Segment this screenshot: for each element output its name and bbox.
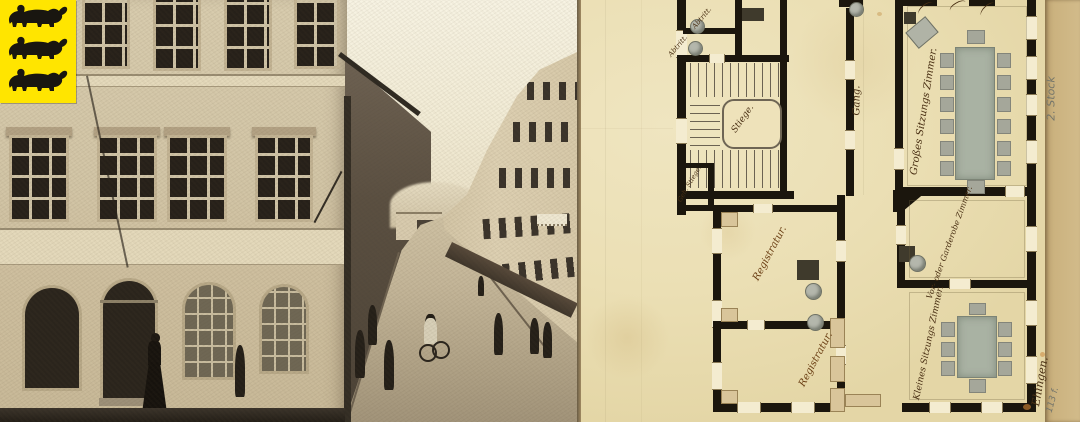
door-gap [894, 148, 904, 170]
wall-window [981, 402, 1003, 413]
room-label-registratur-upper: Registratur. [744, 211, 796, 296]
room-outline [909, 200, 1025, 278]
door-gap [896, 225, 906, 245]
foxing-spot [877, 12, 882, 16]
window-row [513, 122, 577, 142]
door-gap [845, 130, 855, 150]
old-wall-block [830, 388, 845, 412]
door-gap [747, 320, 765, 330]
street-gutter-shadow [0, 408, 345, 422]
wall-window [676, 118, 687, 144]
cyclist-body [424, 318, 437, 344]
chair [997, 97, 1011, 112]
wall-window [1026, 56, 1037, 80]
wall-window [791, 402, 815, 413]
pedestrian [368, 305, 377, 345]
pedestrian-torso [148, 341, 161, 365]
chair [997, 75, 1011, 90]
stove-flue [904, 12, 916, 24]
stove [797, 260, 819, 280]
archival-composite: Abtritt. Abtritt. Stiege. Geh. Stiege. G… [0, 0, 1080, 422]
stair-treads [690, 150, 779, 188]
stair-treads [690, 63, 779, 97]
wall-window [1026, 140, 1037, 164]
pedestrian [384, 340, 394, 390]
pencil-line [641, 0, 642, 422]
window [258, 138, 310, 219]
door-gap [753, 204, 773, 213]
wall-segment [780, 0, 787, 198]
old-wall-block [721, 308, 738, 322]
window [170, 138, 224, 219]
floor-plan-sheet: Abtritt. Abtritt. Stiege. Geh. Stiege. G… [577, 0, 1080, 422]
chair [997, 53, 1011, 68]
string-course [0, 228, 347, 265]
old-wall-block [721, 212, 738, 227]
window-lintel [164, 127, 230, 136]
wall-window [1026, 300, 1037, 326]
bicycle-wheel [432, 341, 450, 359]
pedestrian [543, 322, 552, 358]
pencil-line [577, 128, 673, 129]
door-gap [1005, 186, 1025, 197]
conference-table [955, 47, 995, 180]
old-wall-block [721, 390, 738, 404]
arched-window [25, 288, 79, 388]
chair [969, 379, 986, 393]
chair [967, 30, 985, 44]
privy-fixture [742, 8, 764, 21]
pencil-line [863, 0, 864, 195]
wall-window [1026, 16, 1037, 40]
shop-awning [537, 214, 567, 226]
wall-segment [677, 191, 794, 199]
wall-window [1026, 226, 1037, 252]
wall-segment [735, 0, 742, 58]
chair [998, 361, 1012, 376]
photo-plan-seam [577, 0, 581, 422]
chair [998, 342, 1012, 357]
window-lintel [6, 127, 72, 136]
wall-segment [902, 403, 1036, 412]
door-transom-bar [100, 300, 158, 303]
door-gap [949, 279, 971, 289]
chair [940, 75, 954, 90]
corridor-label: Gang. [851, 86, 862, 116]
wall-segment [708, 163, 714, 209]
chair [941, 342, 955, 357]
chair [940, 141, 954, 156]
window-lintel [94, 127, 160, 136]
arched-window [185, 285, 233, 377]
door-gap [709, 54, 725, 63]
chair [940, 53, 954, 68]
chair [941, 361, 955, 376]
chair [940, 119, 954, 134]
side-window-row [343, 107, 433, 158]
wall-window [712, 228, 722, 254]
baden-wuerttemberg-coat-of-arms [0, 0, 76, 103]
window [85, 0, 127, 66]
old-wall-block [845, 394, 881, 407]
wall-window [1026, 94, 1037, 116]
wall-segment [713, 403, 845, 412]
wall-segment [713, 205, 845, 212]
pedestrian [494, 313, 503, 355]
floor-note: 2. Stock [1045, 76, 1058, 120]
three-lions-icon [0, 0, 76, 103]
pedestrian [235, 345, 245, 397]
chair [998, 322, 1012, 337]
window [12, 138, 66, 219]
old-wall-block [830, 356, 845, 382]
chair [940, 161, 954, 176]
wall-window [929, 402, 951, 413]
door-gap [845, 60, 855, 80]
window [297, 0, 337, 66]
wall-segment [677, 55, 789, 62]
wall-window [737, 402, 761, 413]
stair-treads [690, 100, 720, 146]
chair [997, 119, 1011, 134]
stove [805, 283, 822, 300]
lamp-post [344, 96, 351, 422]
stove [807, 314, 824, 331]
pedestrian [355, 330, 365, 378]
window-lintel [252, 127, 316, 136]
chair [940, 97, 954, 112]
door-gap [836, 240, 846, 262]
chair [997, 161, 1011, 176]
pedestrian [478, 276, 484, 296]
window [156, 0, 198, 68]
wall-window [712, 362, 722, 390]
conference-table [957, 316, 997, 378]
wall-segment [677, 205, 714, 211]
privy-basin [688, 41, 703, 56]
pencil-line [605, 0, 606, 422]
chair [941, 322, 955, 337]
chair [969, 303, 986, 315]
arched-window [262, 287, 306, 371]
historic-street-photograph [0, 0, 577, 422]
stove [849, 2, 864, 17]
window [227, 0, 269, 68]
window-row [499, 168, 577, 188]
chair [997, 141, 1011, 156]
pedestrian [530, 318, 539, 354]
window-row [527, 82, 577, 100]
